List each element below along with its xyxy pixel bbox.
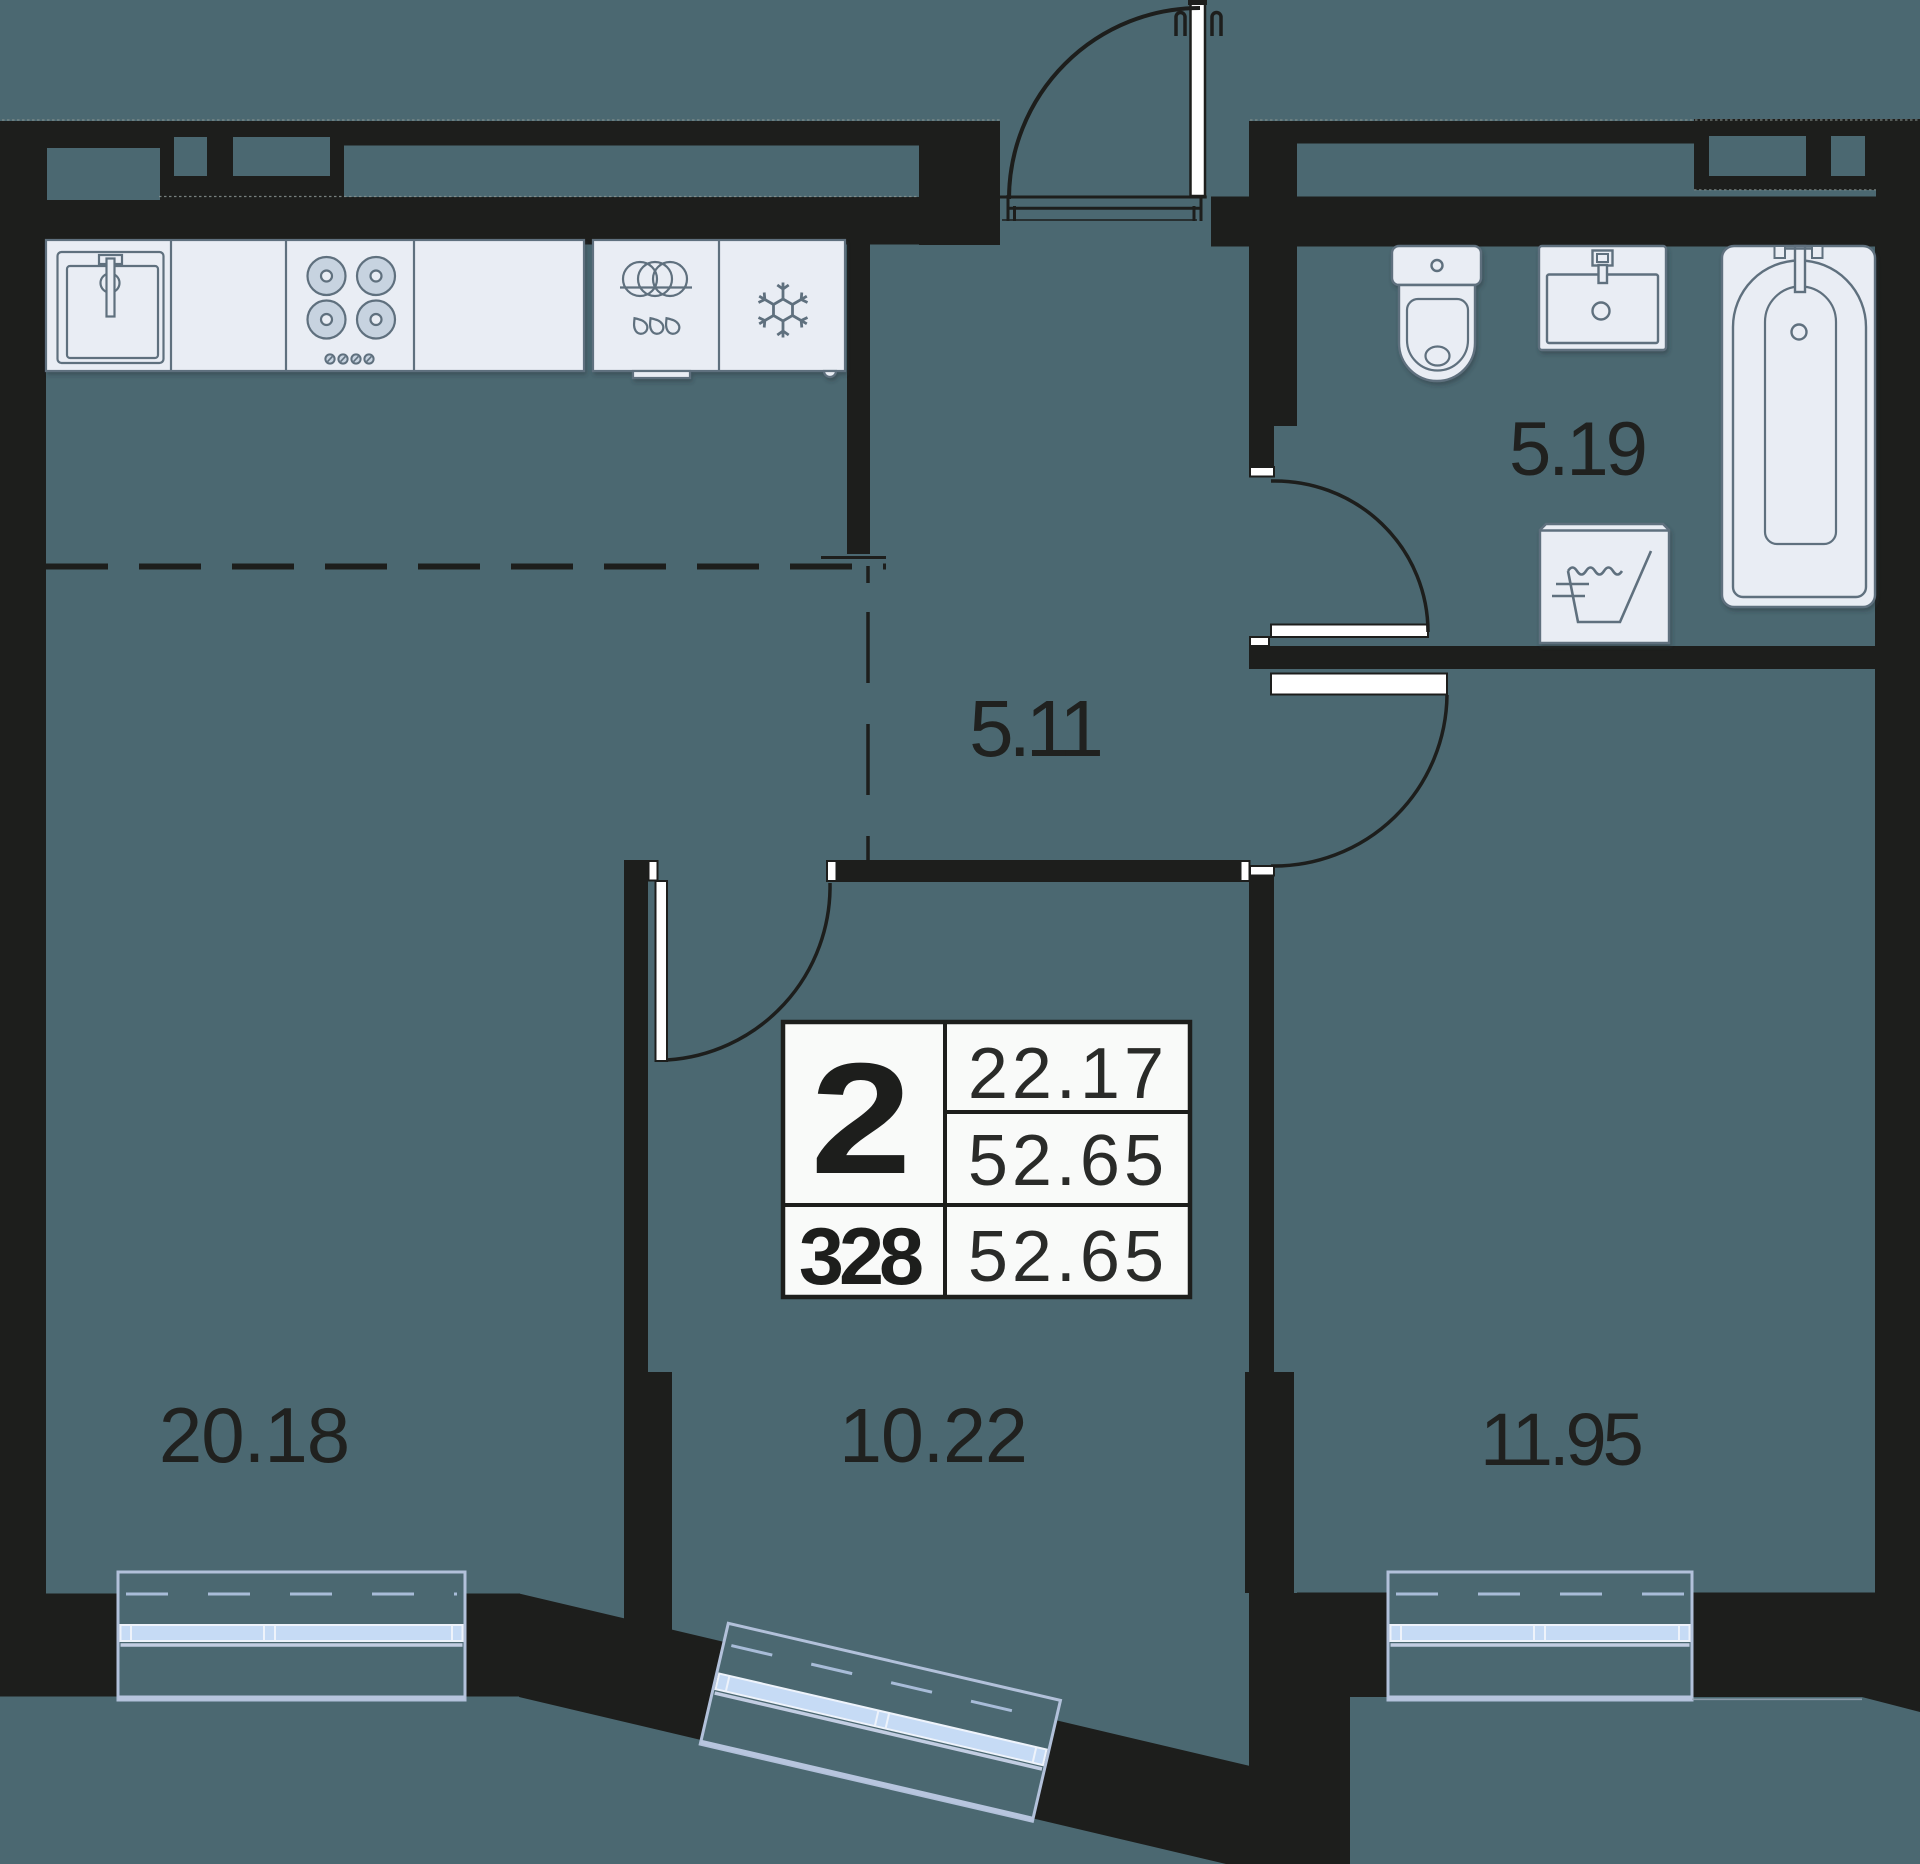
svg-text:5.11: 5.11 <box>969 684 1100 773</box>
svg-text:328: 328 <box>799 1212 922 1302</box>
svg-text:11.95: 11.95 <box>1480 1398 1642 1481</box>
svg-text:10.22: 10.22 <box>839 1393 1027 1479</box>
svg-text:20.18: 20.18 <box>159 1391 349 1479</box>
svg-text:52.65: 52.65 <box>968 1121 1168 1201</box>
svg-text:5.19: 5.19 <box>1509 407 1645 492</box>
svg-text:2: 2 <box>810 1031 911 1207</box>
svg-text:22.17: 22.17 <box>968 1034 1168 1114</box>
svg-text:52.65: 52.65 <box>968 1217 1168 1297</box>
